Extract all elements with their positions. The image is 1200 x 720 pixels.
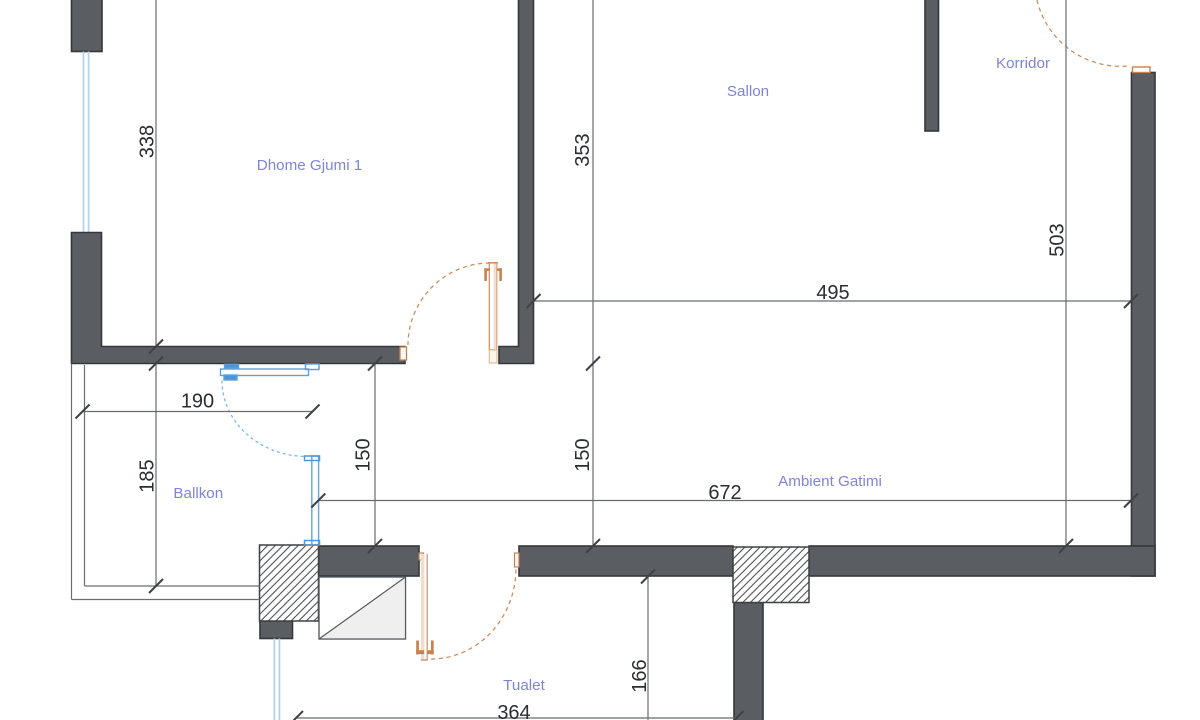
svg-text:Ballkon: Ballkon xyxy=(173,485,223,502)
svg-text:Ambient Gatimi: Ambient Gatimi xyxy=(778,473,882,490)
svg-text:503: 503 xyxy=(1047,223,1069,256)
svg-text:495: 495 xyxy=(816,282,849,304)
svg-text:150: 150 xyxy=(572,438,594,471)
svg-text:Tualet: Tualet xyxy=(503,677,545,694)
svg-text:353: 353 xyxy=(572,133,594,166)
svg-text:190: 190 xyxy=(181,391,214,413)
svg-text:166: 166 xyxy=(629,659,651,692)
svg-text:Korridor: Korridor xyxy=(996,55,1050,72)
svg-text:150: 150 xyxy=(353,438,375,471)
svg-text:Dhome Gjumi 1: Dhome Gjumi 1 xyxy=(257,157,363,174)
svg-text:Sallon: Sallon xyxy=(727,83,769,100)
svg-text:185: 185 xyxy=(137,459,159,492)
svg-text:364: 364 xyxy=(497,702,530,720)
svg-text:672: 672 xyxy=(708,482,741,504)
svg-text:338: 338 xyxy=(137,125,159,158)
